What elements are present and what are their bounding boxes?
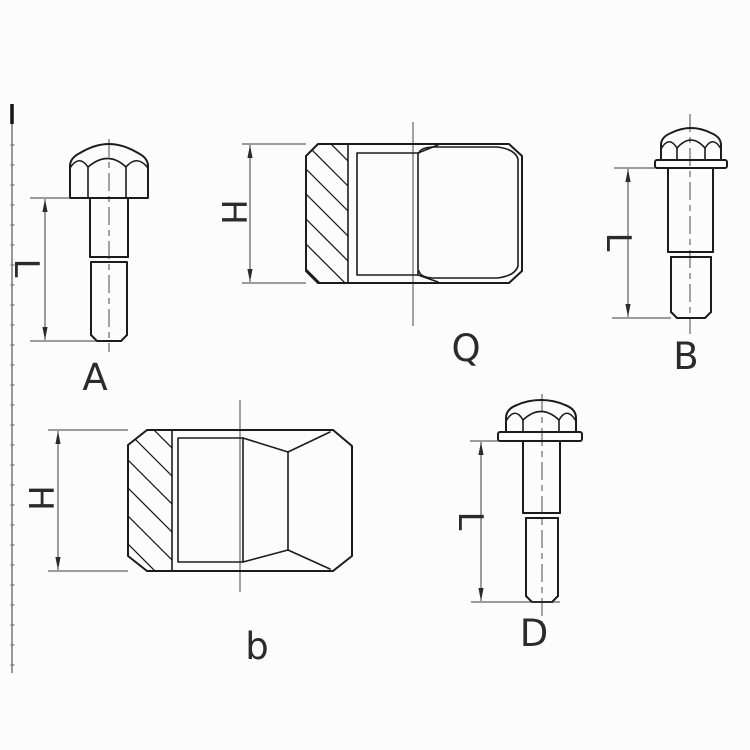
nut-q-label: Q (451, 327, 480, 370)
bolt-d-dimension: L (450, 441, 560, 602)
nut-q-face-edges (418, 145, 518, 282)
nut-b-dim-label: H (20, 485, 60, 511)
bolt-d-flange (498, 432, 582, 441)
bolt-b-thread (671, 257, 711, 318)
bolt-a-figure: L A (6, 139, 148, 399)
nut-b-label: b (245, 625, 269, 668)
bolt-b-head-facets (661, 140, 721, 160)
bolt-d-head-facets (506, 412, 576, 433)
nut-b-hatching (122, 398, 178, 594)
nut-b-dimension: H (20, 430, 128, 571)
nut-q-dim-label: H (213, 199, 253, 225)
bolt-b-dim-label: L (598, 233, 638, 252)
bolt-b-label: B (673, 335, 698, 378)
frame-border (11, 104, 15, 673)
bolt-d-label: D (520, 612, 549, 655)
bolt-a-dimension: L (6, 198, 97, 341)
bolt-b-head (661, 128, 721, 160)
nut-q-figure: H Q (213, 113, 522, 370)
bolt-b-figure: L B (598, 114, 727, 378)
bolt-b-dimension: L (598, 168, 671, 318)
bolt-d-figure: L D (450, 394, 582, 655)
nut-q-dimension: H (213, 144, 306, 283)
nut-q-bore (357, 153, 418, 275)
nut-q-outline (306, 144, 522, 283)
bolt-a-label: A (82, 356, 107, 399)
bolt-a-dim-label: L (6, 259, 46, 278)
nut-b-figure: H b (20, 398, 352, 668)
nut-b-bore (178, 438, 243, 562)
bolt-b-flange (655, 160, 727, 168)
drawing-canvas: L A H Q (0, 0, 750, 750)
bolt-d-dim-label: L (450, 512, 490, 531)
nut-b-face-edges (243, 432, 330, 569)
bolt-d-head (506, 400, 576, 432)
technical-drawing-page: L A H Q (0, 0, 750, 750)
